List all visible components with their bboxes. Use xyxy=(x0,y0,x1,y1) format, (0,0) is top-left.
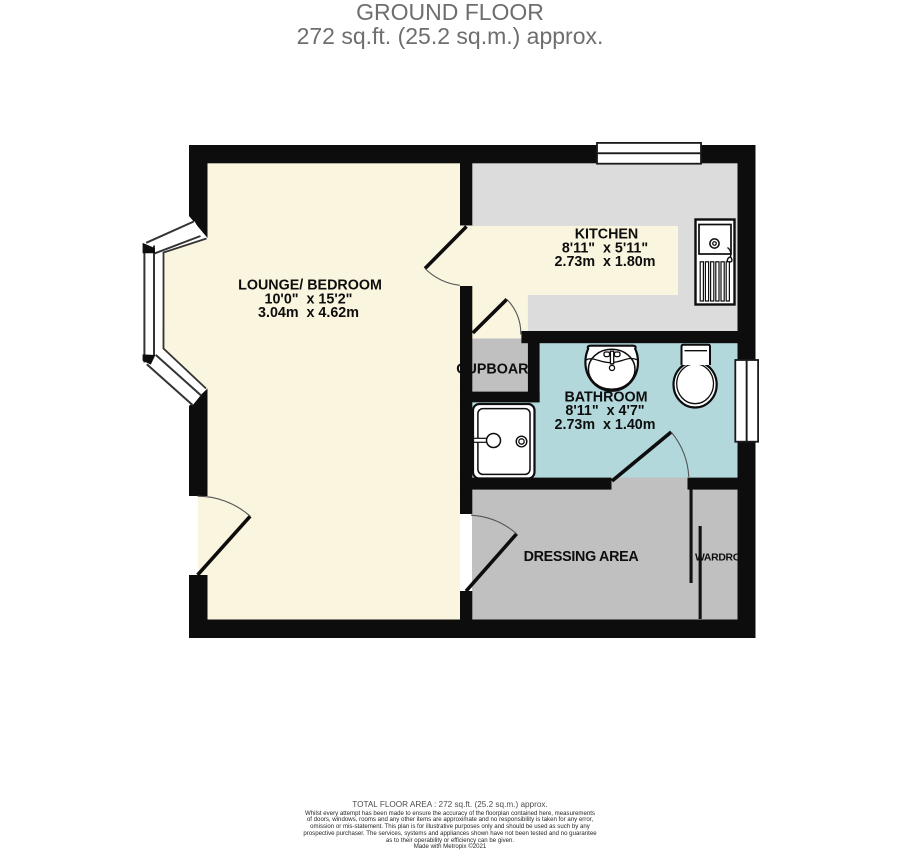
svg-text:3.04m x 4.62m: 3.04m x 4.62m xyxy=(258,305,359,321)
svg-text:2.73m x 1.80m: 2.73m x 1.80m xyxy=(555,254,656,270)
svg-text:2.73m x 1.40m: 2.73m x 1.40m xyxy=(555,417,656,433)
svg-text:DRESSING AREA: DRESSING AREA xyxy=(524,549,639,565)
